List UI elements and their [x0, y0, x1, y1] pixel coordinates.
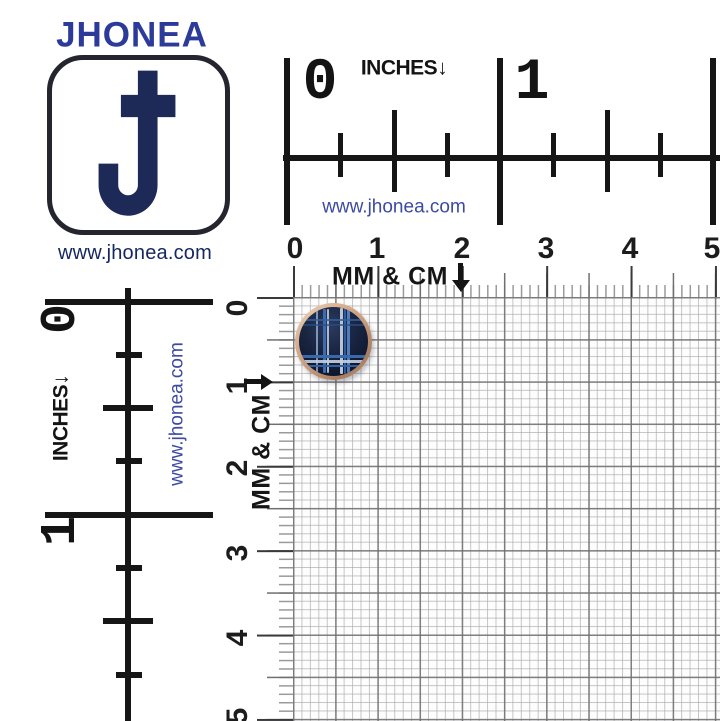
cm-number-0: 0: [223, 300, 253, 317]
down-arrow-icon: ↓: [437, 57, 447, 80]
product-measurement-photo: 0 1 INCHES↓ www.jhonea.com 0 1 2 3 4 5 M…: [0, 0, 720, 721]
cm-number-4: 4: [223, 630, 253, 647]
cm-number-5: 5: [223, 708, 253, 721]
inch-tick-2: [710, 58, 716, 225]
mm-cm-unit-label: MM & CM: [332, 265, 448, 290]
inch-number-0: 0: [303, 55, 338, 113]
quarter-inch-tick: [116, 565, 142, 571]
ruler-website-text: www.jhonea.com: [322, 198, 466, 217]
quarter-inch-tick: [658, 133, 663, 177]
inch-number-1: 1: [37, 516, 87, 546]
brand-j-logo-icon: [95, 66, 179, 226]
inch-tick-0: [284, 58, 290, 225]
inches-unit-label: INCHES↓: [51, 375, 72, 461]
quarter-inch-tick: [338, 133, 343, 177]
ruler-website-text: www.jhonea.com: [168, 342, 187, 486]
down-arrow-icon: ↓: [50, 375, 73, 385]
button-face: [299, 307, 368, 376]
quarter-inch-tick: [445, 133, 450, 177]
quarter-inch-tick: [551, 133, 556, 177]
half-inch-tick: [392, 110, 397, 192]
half-inch-tick: [103, 405, 153, 411]
cm-number-1: 1: [369, 234, 386, 264]
cm-number-5: 5: [704, 234, 720, 264]
quarter-inch-tick: [116, 672, 142, 678]
brand-name: JHONEA: [56, 18, 208, 53]
quarter-inch-tick: [116, 352, 142, 358]
quarter-inch-tick: [116, 458, 142, 464]
cm-number-3: 3: [538, 234, 555, 264]
inch-number-0: 0: [37, 304, 87, 334]
cm-number-0: 0: [287, 234, 304, 264]
product-button-photo: [295, 303, 372, 380]
cm-number-4: 4: [622, 234, 639, 264]
cm-number-2: 2: [454, 234, 471, 264]
half-inch-tick: [103, 618, 153, 624]
mm-cm-unit-label: MM & CM: [250, 394, 275, 510]
inches-unit-label: INCHES↓: [361, 58, 447, 79]
half-inch-tick: [605, 110, 610, 192]
cm-number-3: 3: [223, 545, 253, 562]
inch-number-1: 1: [515, 55, 550, 113]
brand-website-text: www.jhonea.com: [58, 243, 212, 263]
inch-tick-1: [497, 58, 503, 225]
